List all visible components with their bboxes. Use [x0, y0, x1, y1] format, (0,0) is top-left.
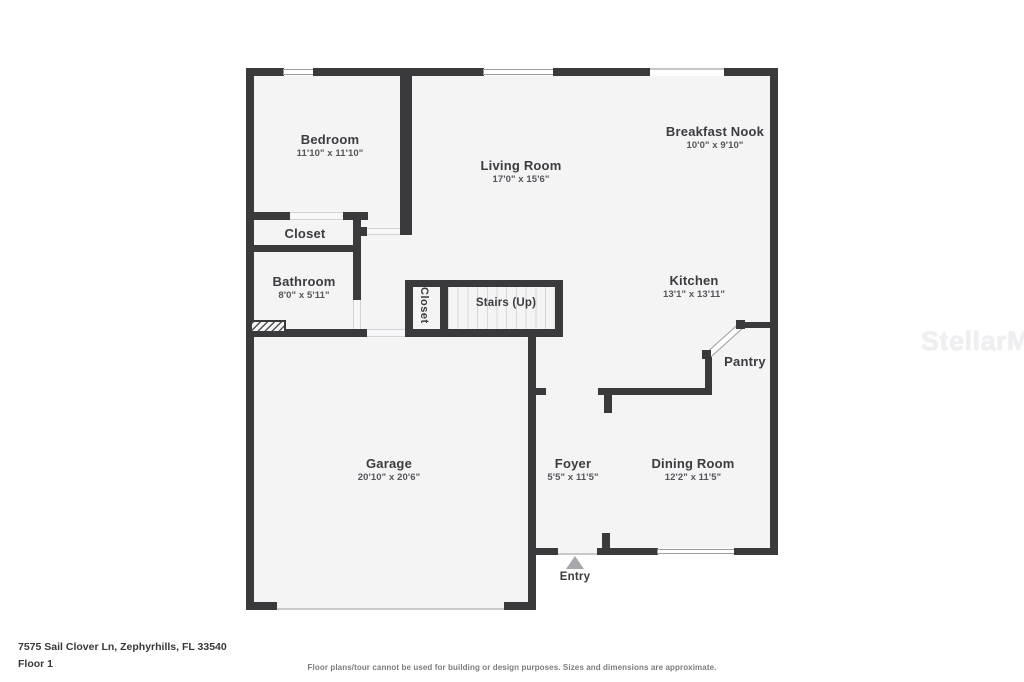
room-name: Stairs (Up) — [476, 297, 536, 309]
wall-segment — [536, 388, 546, 395]
window-dining-room — [655, 548, 737, 555]
entry-door-opening — [558, 548, 597, 555]
property-address: 7575 Sail Clover Ln, Zephyrhills, FL 335… — [18, 641, 227, 653]
wall-segment — [246, 68, 254, 610]
wall-segment — [737, 548, 778, 555]
wall-segment — [246, 602, 277, 610]
room-label-living-room: Living Room 17'0" x 15'6" — [481, 158, 562, 185]
wall-segment — [736, 320, 745, 329]
room-dims: 12'2" x 11'5" — [651, 472, 734, 483]
wall-segment — [597, 548, 655, 555]
wall-segment — [353, 212, 361, 300]
wall-segment — [705, 355, 712, 395]
bedroom-door-opening — [367, 228, 400, 235]
room-label-garage: Garage 20'10" x 20'6" — [358, 456, 420, 483]
wall-segment — [702, 350, 711, 359]
wall-segment — [770, 68, 778, 555]
wall-segment — [405, 280, 563, 287]
floor-area-garage — [246, 68, 535, 610]
wall-segment — [440, 280, 448, 337]
room-label-bedroom: Bedroom 11'10" x 11'10" — [297, 132, 364, 159]
room-name: Bedroom — [297, 132, 364, 147]
room-dims: 20'10" x 20'6" — [358, 472, 420, 483]
room-name: Foyer — [547, 456, 598, 471]
bathroom-shower-hatch — [250, 320, 286, 333]
wall-segment — [246, 212, 290, 220]
wall-segment — [555, 280, 563, 337]
wall-segment — [246, 245, 361, 252]
garage-door-opening — [277, 602, 504, 610]
room-dims: 17'0" x 15'6" — [481, 174, 562, 185]
bathroom-door-opening — [353, 300, 361, 330]
disclaimer-text: Floor plans/tour cannot be used for buil… — [308, 663, 717, 672]
room-label-closet: Closet — [285, 226, 326, 241]
wall-segment — [604, 395, 612, 413]
room-label-stairs: Stairs (Up) — [476, 297, 536, 309]
room-dims: 8'0" x 5'11" — [273, 290, 336, 301]
room-name: Entry — [560, 571, 590, 583]
room-name: Breakfast Nook — [666, 124, 764, 139]
room-label-entry: Entry — [560, 571, 590, 583]
room-label-stairs-closet: Closet — [418, 287, 430, 324]
garage-hall-door-opening — [367, 329, 405, 337]
wall-segment — [405, 329, 563, 337]
room-dims: 10'0" x 9'10" — [666, 140, 764, 151]
room-name: Garage — [358, 456, 420, 471]
room-dims: 11'10" x 11'10" — [297, 148, 364, 159]
room-name: Closet — [285, 226, 326, 241]
wall-segment — [602, 533, 610, 548]
room-label-kitchen: Kitchen 13'1" x 13'11" — [663, 273, 725, 300]
room-dims: 5'5" x 11'5" — [547, 472, 598, 483]
room-label-dining-room: Dining Room 12'2" x 11'5" — [651, 456, 734, 483]
window-living-room — [481, 68, 556, 76]
closet-door-opening — [290, 212, 343, 220]
floor-number: Floor 1 — [18, 658, 53, 670]
room-name: Kitchen — [663, 273, 725, 288]
room-label-breakfast-nook: Breakfast Nook 10'0" x 9'10" — [666, 124, 764, 151]
wall-segment — [316, 68, 481, 76]
wall-segment — [556, 68, 650, 76]
room-dims: 13'1" x 13'11" — [663, 289, 725, 300]
wall-segment — [528, 337, 536, 610]
room-label-pantry: Pantry — [724, 354, 766, 369]
window-bedroom — [281, 68, 316, 76]
wall-segment — [400, 68, 412, 235]
room-name: Living Room — [481, 158, 562, 173]
room-label-foyer: Foyer 5'5" x 11'5" — [547, 456, 598, 483]
entry-arrow-icon — [566, 556, 584, 569]
floor-plan-image: Bedroom 11'10" x 11'10" Living Room 17'0… — [0, 0, 1024, 682]
room-label-bathroom: Bathroom 8'0" x 5'11" — [273, 274, 336, 301]
wall-segment — [598, 388, 712, 395]
room-name: Bathroom — [273, 274, 336, 289]
window-breakfast-nook — [650, 68, 724, 76]
stellar-mls-watermark: StellarMLS — [921, 326, 1024, 357]
room-name: Dining Room — [651, 456, 734, 471]
wall-segment — [361, 227, 367, 236]
wall-segment — [405, 280, 413, 337]
room-name: Pantry — [724, 354, 766, 369]
